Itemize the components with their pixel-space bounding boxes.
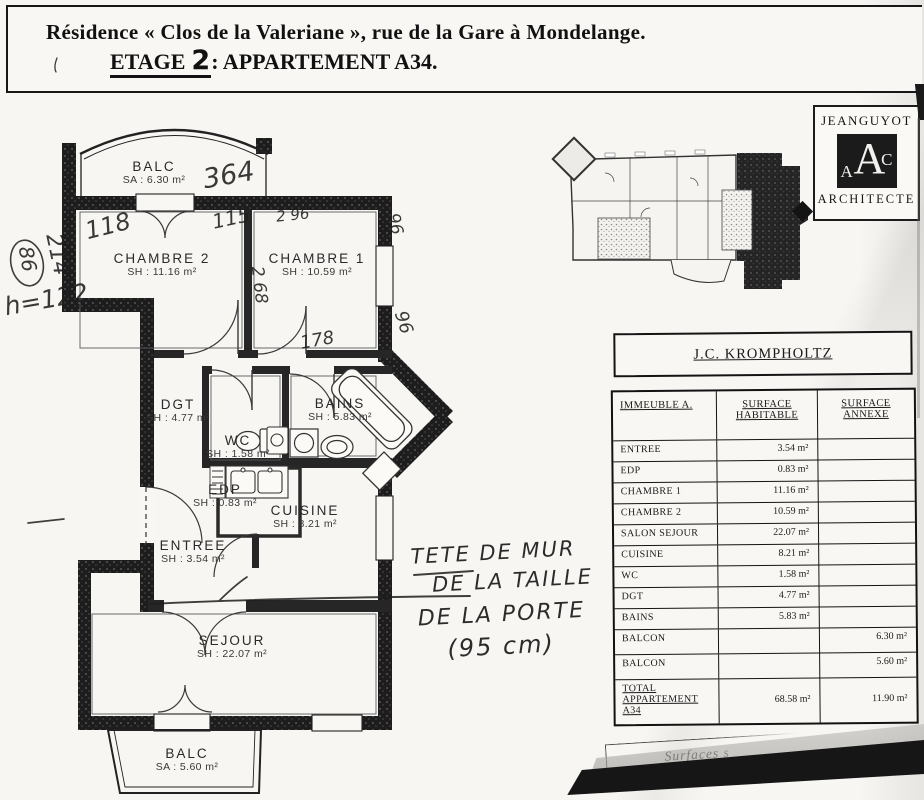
surface-table: J.C. KROMPHOLTZ IMMEUBLE A. SURFACE HABI… — [610, 331, 918, 727]
table-row: BALCON5.60 m² — [615, 652, 916, 680]
subtitle-rest: : APPARTEMENT A34. — [211, 49, 437, 74]
room-label-chambre2: CHAMBRE 2 SH : 11.16 m² — [114, 251, 211, 278]
col-annexe: SURFACE ANNEXE — [841, 398, 890, 420]
hand-measure-96-upper: 96 — [383, 211, 407, 236]
basin-icon — [321, 436, 353, 459]
table-row: CHAMBRE 210.59 m² — [614, 501, 915, 525]
scanned-floorplan-page: Résidence « Clos de la Valeriane », rue … — [0, 0, 924, 800]
doc-title: Résidence « Clos de la Valeriane », rue … — [46, 20, 922, 45]
doc-subtitle: ETAGE2: APPARTEMENT A34. — [110, 47, 922, 75]
table-row: DGT4.77 m² — [615, 585, 916, 609]
table-row: CHAMBRE 111.16 m² — [614, 480, 915, 504]
handwritten-floor-number: 2 — [191, 45, 210, 76]
title-box: Résidence « Clos de la Valeriane », rue … — [6, 5, 922, 93]
room-label-edp: EDP SH : 0.83 m² — [193, 482, 257, 509]
room-label-dgt: DGT SH : 4.77 m² — [146, 397, 210, 424]
col-habitable: SURFACE HABITABLE — [736, 399, 798, 421]
table-header-row: IMMEUBLE A. SURFACE HABITABLE SURFACE AN… — [613, 390, 914, 441]
hand-measure-86: 86 — [14, 244, 42, 273]
col-immeuble: IMMEUBLE A. — [620, 400, 693, 412]
paper-crease — [917, 118, 920, 418]
etage-label: ETAGE — [110, 49, 185, 74]
surface-table-grid: IMMEUBLE A. SURFACE HABITABLE SURFACE AN… — [611, 388, 919, 727]
hand-measure-296: 2 96 — [275, 204, 310, 225]
room-label-sejour: SEJOUR SH : 22.07 m² — [197, 633, 267, 660]
table-row: BALCON6.30 m² — [615, 627, 916, 655]
table-row: EDP0.83 m² — [613, 459, 914, 483]
owner-box: J.C. KROMPHOLTZ — [613, 331, 912, 378]
aac-monogram-icon: A A C — [837, 134, 897, 188]
handwritten-note: TETE DE MUR DE LA TAILLE DE LA PORTE (95… — [410, 535, 597, 664]
architect-name: JEANGUYOT — [815, 113, 918, 129]
table-total-row: TOTAL APPARTEMENT A3468.58 m²11.90 m² — [615, 677, 916, 725]
washing-machine-icon — [290, 429, 318, 457]
room-label-balc-top: BALC SA : 6.30 m² — [123, 159, 186, 186]
table-row: WC1.58 m² — [614, 564, 915, 588]
room-label-chambre1: CHAMBRE 1 SH : 10.59 m² — [269, 251, 366, 278]
table-row: ENTREE3.54 m² — [613, 438, 914, 462]
room-label-bains: BAINS SH : 5.83 m² — [308, 396, 372, 423]
room-label-cuisine: CUISINE SH : 8.21 m² — [271, 503, 340, 530]
room-label-entree: ENTREE SH : 3.54 m² — [160, 538, 227, 565]
room-label-balc-bottom: BALC SA : 5.60 m² — [156, 746, 219, 773]
architect-title: ARCHITECTE — [815, 192, 918, 207]
table-row: CUISINE8.21 m² — [614, 543, 915, 567]
table-row: SALON SEJOUR22.07 m² — [614, 522, 915, 546]
key-plan — [553, 138, 808, 289]
owner-name: J.C. KROMPHOLTZ — [693, 345, 832, 363]
table-row: BAINS5.83 m² — [615, 606, 916, 630]
room-label-wc: WC SH : 1.58 m² — [206, 433, 270, 460]
architect-stamp: JEANGUYOT A A C ARCHITECTE — [813, 105, 920, 221]
wc-sink-icon — [267, 427, 288, 454]
